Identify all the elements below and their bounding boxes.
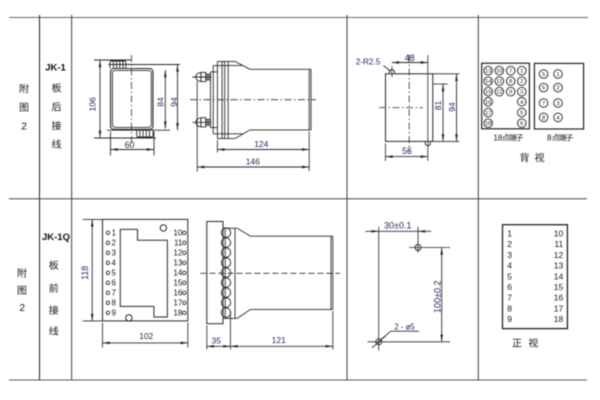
svg-text:8: 8 <box>507 303 512 313</box>
svg-text:18: 18 <box>485 121 491 127</box>
svg-text:12: 12 <box>496 90 502 96</box>
svg-text:18: 18 <box>554 314 564 324</box>
svg-text:12: 12 <box>554 250 564 260</box>
svg-text:6: 6 <box>520 121 523 127</box>
svg-text:94: 94 <box>447 102 457 112</box>
svg-text:8: 8 <box>112 299 117 308</box>
svg-text:1: 1 <box>112 229 117 238</box>
svg-text:7: 7 <box>112 289 117 298</box>
svg-text:13: 13 <box>485 69 491 75</box>
svg-text:124: 124 <box>254 139 268 149</box>
svg-text:11: 11 <box>554 239 563 249</box>
svg-text:2: 2 <box>507 239 512 249</box>
svg-text:13: 13 <box>554 261 564 271</box>
svg-text:3: 3 <box>520 90 523 96</box>
svg-text:15: 15 <box>485 90 491 96</box>
svg-text:JK-1: JK-1 <box>45 63 66 74</box>
svg-text:3: 3 <box>556 101 559 107</box>
svg-text:JK-1Q: JK-1Q <box>42 232 70 243</box>
svg-text:84: 84 <box>156 97 166 107</box>
svg-text:16: 16 <box>173 289 182 298</box>
svg-text:18: 18 <box>173 309 182 318</box>
svg-text:4: 4 <box>112 259 117 268</box>
svg-text:10: 10 <box>173 229 182 238</box>
svg-text:35: 35 <box>212 335 222 345</box>
svg-text:81: 81 <box>433 101 443 111</box>
svg-text:15: 15 <box>554 282 564 292</box>
svg-text:60: 60 <box>125 140 135 150</box>
svg-text:16: 16 <box>554 293 564 303</box>
svg-text:102: 102 <box>139 331 153 341</box>
svg-text:100±0.2: 100±0.2 <box>432 280 442 312</box>
svg-text:121: 121 <box>272 335 287 345</box>
svg-text:11: 11 <box>496 79 502 85</box>
svg-text:6: 6 <box>507 282 512 292</box>
svg-text:9: 9 <box>509 90 512 96</box>
svg-text:2: 2 <box>112 239 117 248</box>
svg-text:13: 13 <box>173 259 182 268</box>
svg-text:16: 16 <box>485 100 491 106</box>
svg-text:6: 6 <box>542 86 545 92</box>
svg-text:2: 2 <box>556 86 559 92</box>
svg-text:2: 2 <box>520 79 523 85</box>
svg-text:3: 3 <box>507 250 512 260</box>
svg-text:14: 14 <box>485 79 492 85</box>
svg-text:4: 4 <box>507 261 512 271</box>
svg-text:56: 56 <box>402 146 412 156</box>
svg-text:8: 8 <box>542 116 545 122</box>
svg-text:15: 15 <box>173 279 182 288</box>
svg-text:48: 48 <box>405 53 415 63</box>
svg-text:17: 17 <box>173 299 182 308</box>
svg-text:94: 94 <box>169 97 179 107</box>
svg-text:2: 2 <box>19 303 25 314</box>
svg-text:118: 118 <box>80 266 90 280</box>
svg-text:17: 17 <box>485 111 491 117</box>
svg-text:3: 3 <box>112 249 117 258</box>
svg-text:5: 5 <box>112 269 117 278</box>
svg-text:1: 1 <box>520 69 523 75</box>
svg-text:18: 18 <box>493 133 502 142</box>
svg-text:5: 5 <box>542 72 545 78</box>
svg-text:17: 17 <box>554 303 564 313</box>
svg-text:7: 7 <box>507 293 512 303</box>
svg-text:11: 11 <box>174 239 183 248</box>
svg-text:2-R2.5: 2-R2.5 <box>356 58 381 67</box>
svg-text:146: 146 <box>246 157 260 167</box>
svg-text:1: 1 <box>507 229 512 239</box>
svg-text:10: 10 <box>496 69 502 75</box>
svg-text:7: 7 <box>509 69 512 75</box>
svg-text:8: 8 <box>509 79 512 85</box>
svg-text:10: 10 <box>554 229 564 239</box>
svg-text:12: 12 <box>173 249 182 258</box>
svg-text:5: 5 <box>507 271 512 281</box>
svg-text:106: 106 <box>87 97 97 112</box>
svg-text:9: 9 <box>112 309 117 318</box>
svg-text:9: 9 <box>507 314 512 324</box>
svg-text:7: 7 <box>542 101 545 107</box>
svg-text:2 - ø5: 2 - ø5 <box>394 322 415 331</box>
svg-text:1: 1 <box>556 72 559 78</box>
svg-text:8: 8 <box>547 133 552 142</box>
svg-text:5: 5 <box>520 111 523 117</box>
svg-text:14: 14 <box>173 269 182 278</box>
svg-text:6: 6 <box>112 279 117 288</box>
svg-text:14: 14 <box>554 271 564 281</box>
svg-text:30±0.1: 30±0.1 <box>384 220 411 230</box>
svg-text:2: 2 <box>21 122 27 133</box>
